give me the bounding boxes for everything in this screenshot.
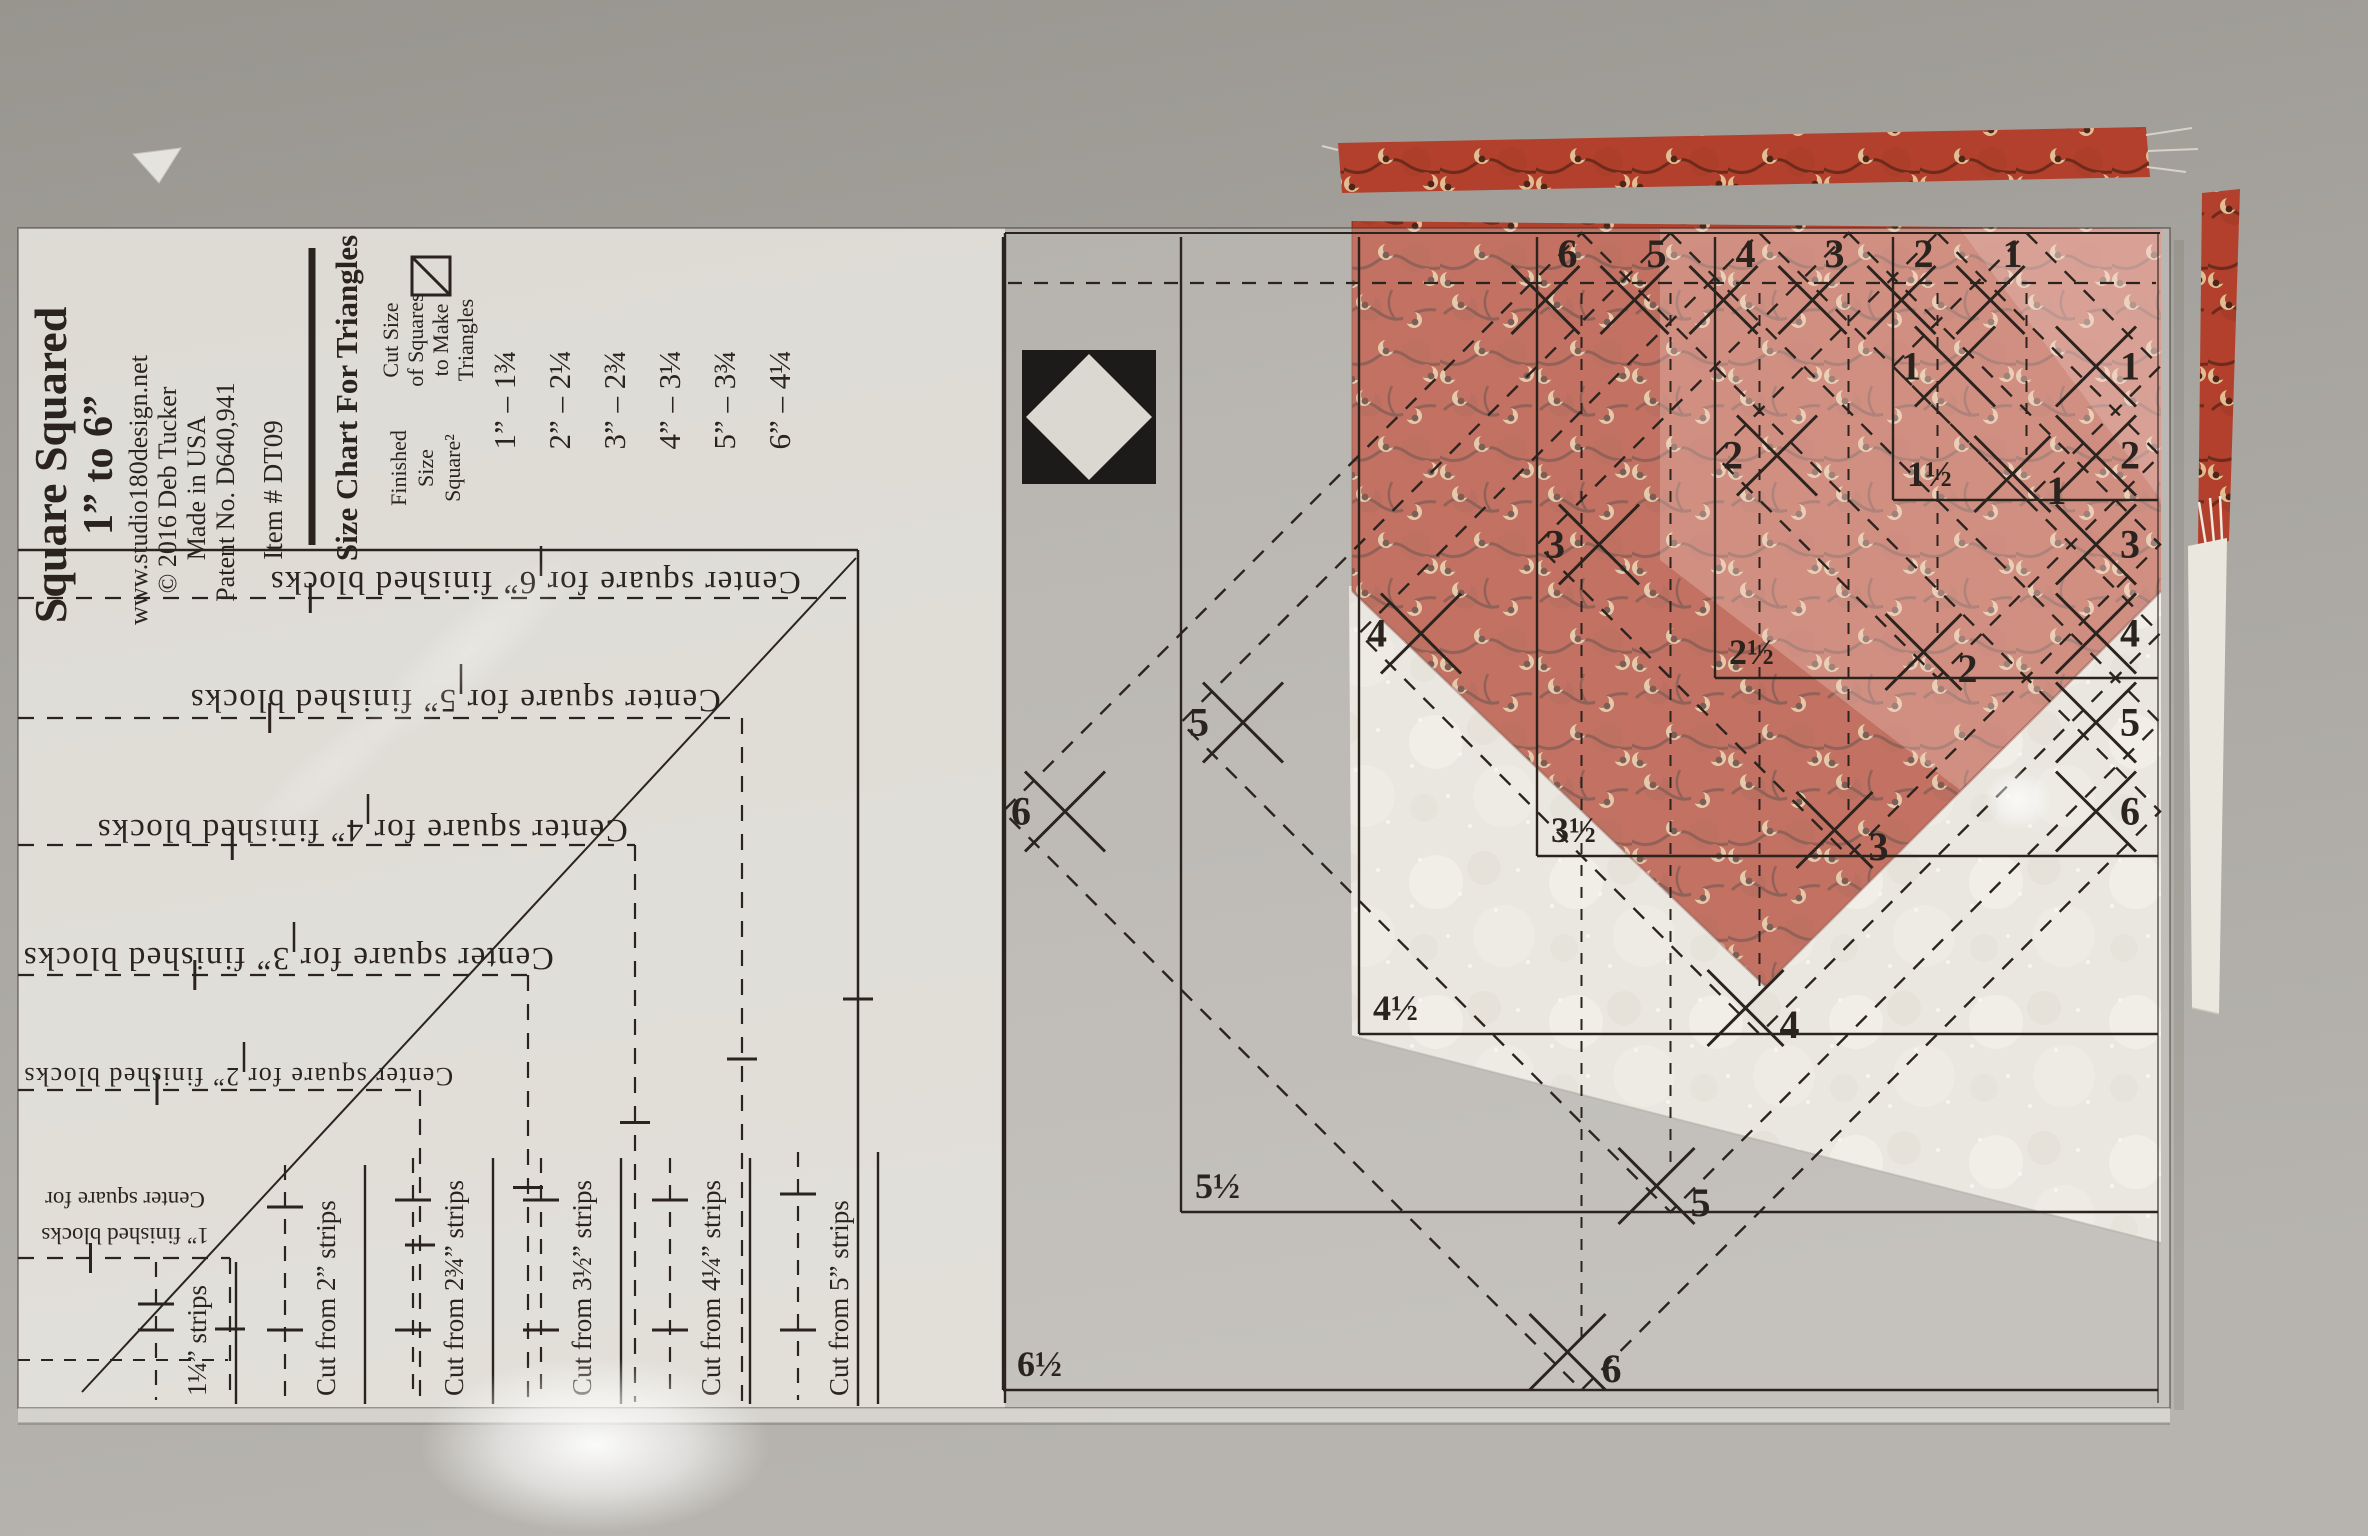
strip-label: Cut from 4¼” strips <box>696 1180 726 1396</box>
brand-patent: Patent No. D640,941 <box>211 382 240 602</box>
chart-cut-header-line: Cut Size <box>378 302 403 377</box>
grid-number-right: 3 <box>2120 522 2140 567</box>
brand-title: Square Squared <box>25 306 76 623</box>
corner-size-label: 5½ <box>1195 1166 1240 1206</box>
grid-number-bottom: 3 <box>1869 824 1889 869</box>
chart-row: 5” – 3¾ <box>707 350 742 449</box>
corner-size-label: 3½ <box>1551 810 1596 850</box>
center-square-label: Center square for 3” finished blocks <box>22 940 553 976</box>
strip-label: 1¼” strips <box>182 1285 212 1396</box>
grid-number-diagonal: 5 <box>1189 700 1209 745</box>
strip-label: Cut from 2” strips <box>311 1200 341 1396</box>
grid-number-right: 5 <box>2120 700 2140 745</box>
corner-size-label: 4½ <box>1373 988 1418 1028</box>
chart-row: 6” – 4¼ <box>762 350 797 449</box>
chart-row: 3” – 2¾ <box>597 350 632 449</box>
brand-item-number: Item # DT09 <box>258 420 288 559</box>
size-chart-heading: Size Chart For Triangles <box>329 235 364 561</box>
strip-label: Cut from 5” strips <box>824 1200 854 1396</box>
photo-quilting-ruler-scene: Square Squared 1” to 6” www.studio180des… <box>0 0 2368 1536</box>
grid-number-diagonal: 4 <box>1367 611 1387 656</box>
grid-number-diagonal: 3 <box>1545 522 1565 567</box>
chart-finished-header-line: Size <box>413 449 438 487</box>
chart-finished-header-line: Square² <box>440 434 465 502</box>
grid-number-diagonal: 2 <box>1723 433 1743 478</box>
brand-website: www.studio180design.net <box>124 354 153 625</box>
grid-number-right: 1 <box>2120 344 2140 389</box>
grid-number-bottom: 4 <box>1780 1002 1800 1047</box>
brand-subtitle: 1” to 6” <box>76 395 122 535</box>
grid-number-right: 6 <box>2120 789 2140 834</box>
diamond-in-square-logo-icon <box>1022 350 1156 484</box>
grid-number-bottom: 5 <box>1691 1180 1711 1225</box>
corner-size-label: 6½ <box>1017 1344 1062 1384</box>
chart-row: 1” – 1¾ <box>487 350 522 449</box>
grid-number-right: 4 <box>2120 611 2140 656</box>
center-square-label: Center square for 2” finished blocks <box>23 1062 453 1091</box>
center-square-label: 1” finished blocks <box>41 1223 208 1248</box>
grid-number-bottom: 2 <box>1958 646 1978 691</box>
chart-cut-header-line: to Make <box>428 304 453 377</box>
chart-row: 2” – 2¼ <box>542 350 577 449</box>
strip-label: Cut from 2¾” strips <box>439 1180 469 1396</box>
brand-origin: Made in USA <box>182 416 211 561</box>
grid-number-right: 2 <box>2120 433 2140 478</box>
chart-finished-header-line: Finished <box>386 430 411 506</box>
grid-number-diagonal: 1 <box>1901 344 1921 389</box>
brand-copyright: © 2016 Deb Tucker <box>153 386 182 593</box>
chart-row: 4” – 3¼ <box>652 350 687 449</box>
corner-size-label: 1½ <box>1907 454 1952 494</box>
ruler-edge-shadow <box>2174 240 2184 1410</box>
center-square-label: Center square for 4” finished blocks <box>96 812 627 848</box>
grid-number-bottom: 6 <box>1602 1346 1622 1391</box>
chart-cut-header-line: Triangles <box>453 299 478 381</box>
chart-cut-header-line: of Squares <box>403 293 428 386</box>
grid-number-diagonal: 6 <box>1011 789 1031 834</box>
ruler-bottom-bevel <box>18 1408 2170 1422</box>
center-square-label: Center square for <box>45 1187 205 1212</box>
corner-size-label: 2½ <box>1729 632 1774 672</box>
